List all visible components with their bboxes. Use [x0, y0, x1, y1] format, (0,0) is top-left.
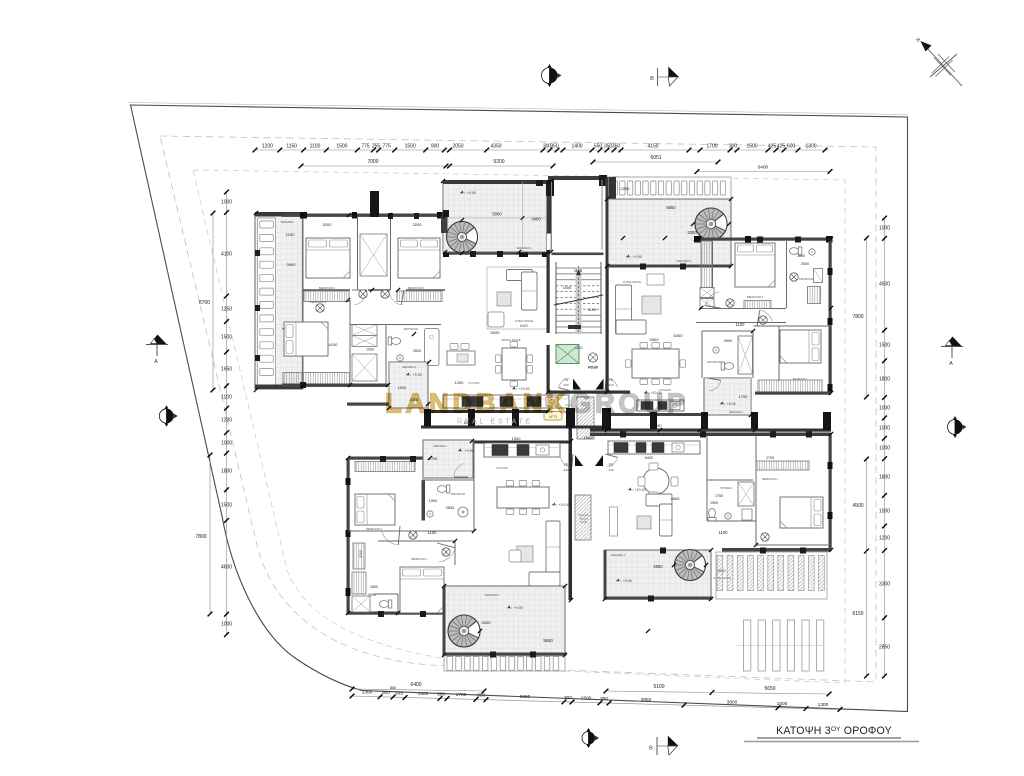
svg-text:VERANDA 1: VERANDA 1: [676, 259, 692, 263]
svg-text:3200: 3200: [323, 222, 333, 227]
svg-text:7800: 7800: [852, 314, 863, 320]
svg-text:VERANDA: VERANDA: [281, 220, 294, 224]
svg-text:1700: 1700: [739, 394, 749, 399]
svg-text:Δ30: Δ30: [563, 383, 569, 387]
svg-text:5100: 5100: [653, 684, 664, 690]
svg-text:B: B: [649, 746, 653, 752]
svg-text:300: 300: [729, 144, 738, 150]
svg-text:2630: 2630: [446, 506, 454, 510]
svg-text:BATHROOM: BATHROOM: [404, 328, 418, 331]
svg-text:1100: 1100: [427, 530, 437, 535]
svg-text:4500: 4500: [650, 337, 660, 342]
svg-text:1600: 1600: [575, 346, 583, 350]
svg-text:1900: 1900: [710, 501, 718, 505]
svg-text:1900: 1900: [429, 499, 437, 503]
svg-text:350: 350: [550, 144, 559, 150]
svg-text:Δ30: Δ30: [608, 383, 614, 387]
svg-text:5200: 5200: [493, 159, 504, 165]
svg-text:VERANDA 1: VERANDA 1: [516, 246, 532, 250]
svg-text:Δ30: Δ30: [563, 468, 569, 472]
svg-text:A: A: [154, 359, 158, 365]
svg-text:1800: 1800: [879, 475, 890, 481]
svg-text:2150: 2150: [286, 232, 296, 237]
svg-text:775: 775: [383, 144, 392, 150]
svg-text:Δ30: Δ30: [608, 468, 614, 472]
svg-text:Βεράντα: Βεράντα: [580, 518, 589, 521]
svg-text:1500: 1500: [777, 701, 788, 707]
svg-text:+9.95: +9.95: [514, 606, 523, 610]
svg-text:1000: 1000: [879, 446, 890, 452]
svg-text:350: 350: [600, 696, 608, 702]
svg-text:+9.95: +9.95: [413, 373, 422, 377]
svg-text:1500: 1500: [746, 144, 757, 150]
svg-text:B: B: [650, 76, 654, 82]
svg-text:POND: POND: [581, 522, 588, 524]
svg-text:+10.00: +10.00: [635, 488, 646, 492]
svg-text:3850: 3850: [520, 694, 531, 700]
svg-text:1100: 1100: [221, 395, 232, 401]
svg-text:+10.00: +10.00: [559, 503, 570, 507]
svg-text:1500: 1500: [879, 509, 890, 515]
svg-text:6400: 6400: [410, 682, 421, 688]
svg-text:1700: 1700: [766, 456, 774, 460]
svg-text:+9.95: +9.95: [623, 579, 632, 583]
svg-text:1200: 1200: [879, 536, 890, 542]
svg-text:255: 255: [372, 144, 381, 150]
svg-text:1000: 1000: [879, 226, 890, 232]
svg-text:1600: 1600: [370, 585, 378, 589]
svg-text:4350: 4350: [490, 144, 501, 150]
svg-text:900: 900: [382, 690, 390, 696]
svg-text:VERANDA 3: VERANDA 3: [402, 366, 417, 369]
svg-text:VERANDA 2: VERANDA 2: [729, 411, 744, 414]
svg-text:1300: 1300: [362, 689, 373, 695]
svg-text:1700: 1700: [706, 144, 717, 150]
svg-text:3300: 3300: [687, 230, 697, 235]
svg-text:1650: 1650: [221, 367, 232, 373]
svg-text:1200: 1200: [262, 144, 273, 150]
svg-text:REAL ESTATE: REAL ESTATE: [457, 419, 533, 426]
svg-text:3800: 3800: [727, 699, 738, 705]
svg-text:1000: 1000: [221, 622, 232, 628]
svg-text:775: 775: [361, 144, 370, 150]
svg-text:4100: 4100: [329, 342, 339, 347]
svg-text:7800: 7800: [195, 534, 206, 540]
svg-text:2280: 2280: [621, 186, 631, 191]
svg-text:4500: 4500: [852, 503, 863, 509]
svg-text:1100: 1100: [310, 144, 321, 150]
svg-text:3300: 3300: [879, 582, 890, 588]
svg-text:FD30: FD30: [588, 365, 599, 370]
svg-text:1000: 1000: [512, 436, 522, 441]
svg-text:6150: 6150: [852, 611, 863, 617]
svg-text:2600: 2600: [413, 349, 421, 353]
svg-text:3100: 3100: [359, 550, 363, 558]
svg-text:BATHROOM: BATHROOM: [799, 278, 813, 281]
svg-text:VERANDA 1: VERANDA 1: [611, 553, 626, 557]
svg-text:4150: 4150: [647, 144, 658, 150]
svg-text:BATHROOM: BATHROOM: [451, 493, 465, 496]
svg-text:KITCHEN: KITCHEN: [496, 466, 508, 470]
svg-text:+9.95: +9.95: [727, 402, 736, 406]
svg-text:1500: 1500: [336, 144, 347, 150]
svg-text:1500: 1500: [879, 343, 890, 349]
svg-text:1500: 1500: [221, 335, 232, 341]
svg-text:5000: 5000: [492, 212, 502, 217]
svg-text:5000: 5000: [491, 330, 501, 335]
svg-text:5650: 5650: [666, 205, 676, 210]
svg-text:600: 600: [787, 144, 796, 150]
svg-text:1100: 1100: [588, 308, 596, 312]
svg-text:1700: 1700: [715, 494, 723, 498]
svg-text:1250: 1250: [221, 307, 232, 313]
svg-text:6051: 6051: [650, 155, 661, 161]
svg-text:1250: 1250: [455, 380, 465, 385]
svg-text:1500: 1500: [221, 503, 232, 509]
svg-text:1100: 1100: [718, 530, 728, 535]
svg-text:4600: 4600: [671, 496, 681, 501]
svg-text:1100: 1100: [574, 269, 582, 273]
svg-text:1300: 1300: [818, 702, 829, 708]
svg-text:3900: 3900: [287, 262, 297, 267]
svg-text:+9.95: +9.95: [467, 191, 476, 195]
svg-text:2600: 2600: [724, 339, 732, 343]
svg-text:2000: 2000: [801, 262, 809, 266]
svg-text:300: 300: [477, 693, 485, 699]
svg-text:2050: 2050: [452, 144, 463, 150]
svg-text:LIVING SPACE: LIVING SPACE: [515, 319, 534, 323]
svg-text:1000: 1000: [221, 200, 232, 206]
svg-text:3200: 3200: [413, 222, 423, 227]
svg-text:KITCHEN: KITCHEN: [469, 382, 480, 385]
svg-text:LIVING SPACE: LIVING SPACE: [623, 280, 642, 284]
svg-text:1200: 1200: [221, 418, 232, 424]
svg-text:VERANDA 1: VERANDA 1: [484, 593, 500, 597]
svg-text:935: 935: [395, 690, 403, 696]
svg-text:1500: 1500: [581, 695, 592, 701]
svg-text:1800: 1800: [221, 469, 232, 475]
svg-text:6400: 6400: [645, 456, 653, 460]
svg-text:6400: 6400: [758, 165, 769, 170]
svg-text:350: 350: [612, 144, 621, 150]
svg-text:+9.95: +9.95: [465, 449, 474, 453]
svg-text:425: 425: [768, 144, 777, 150]
svg-text:1150: 1150: [286, 144, 297, 150]
svg-text:BEDROOM 1: BEDROOM 1: [747, 295, 764, 299]
svg-text:1800: 1800: [879, 377, 890, 383]
svg-text:300: 300: [564, 695, 572, 701]
svg-text:1000: 1000: [653, 423, 663, 428]
svg-text:1800: 1800: [797, 254, 805, 258]
svg-text:BEDROOM 1: BEDROOM 1: [411, 557, 427, 561]
svg-text:LANDBANK: LANDBANK: [385, 388, 570, 419]
svg-text:7000: 7000: [367, 159, 378, 165]
svg-text:900: 900: [431, 144, 440, 150]
svg-text:8700: 8700: [199, 300, 210, 306]
svg-text:1700: 1700: [456, 692, 467, 698]
svg-text:5650: 5650: [764, 686, 775, 692]
svg-text:3400: 3400: [531, 217, 541, 222]
svg-text:+9.95: +9.95: [633, 255, 642, 259]
svg-text:1500: 1500: [418, 691, 429, 697]
svg-text:1000: 1000: [879, 426, 890, 432]
svg-text:6400: 6400: [674, 333, 684, 338]
svg-text:SHOWER: SHOWER: [720, 487, 731, 490]
svg-text:300: 300: [437, 691, 445, 697]
svg-text:1500: 1500: [405, 144, 416, 150]
svg-text:A: A: [949, 361, 953, 367]
svg-text:VERANDA 2: VERANDA 2: [433, 445, 447, 448]
svg-text:5650: 5650: [543, 638, 553, 643]
svg-text:6400: 6400: [520, 324, 528, 328]
svg-text:4500: 4500: [879, 282, 890, 288]
svg-text:425: 425: [777, 144, 786, 150]
svg-text:1000: 1000: [221, 441, 232, 447]
svg-text:550: 550: [594, 144, 603, 150]
svg-text:GROUP: GROUP: [570, 388, 689, 419]
svg-text:1400: 1400: [571, 144, 582, 150]
svg-text:BATHROOM: BATHROOM: [707, 361, 721, 364]
svg-text:Περίφραξη: Περίφραξη: [579, 514, 591, 517]
svg-text:BEDROOM 1: BEDROOM 1: [762, 477, 778, 481]
svg-text:4600: 4600: [221, 565, 232, 571]
svg-text:1300: 1300: [805, 144, 816, 150]
svg-text:4100: 4100: [221, 252, 232, 258]
svg-text:1500: 1500: [563, 286, 571, 290]
svg-text:3000: 3000: [482, 620, 492, 625]
svg-text:1000: 1000: [879, 406, 890, 412]
svg-text:4950: 4950: [653, 564, 663, 569]
svg-text:BEDROOM 1: BEDROOM 1: [310, 300, 327, 304]
svg-text:1930: 1930: [366, 348, 374, 352]
svg-text:BEDROOM 2: BEDROOM 2: [366, 527, 382, 531]
svg-text:2850: 2850: [879, 645, 890, 651]
svg-text:3850: 3850: [641, 697, 652, 703]
